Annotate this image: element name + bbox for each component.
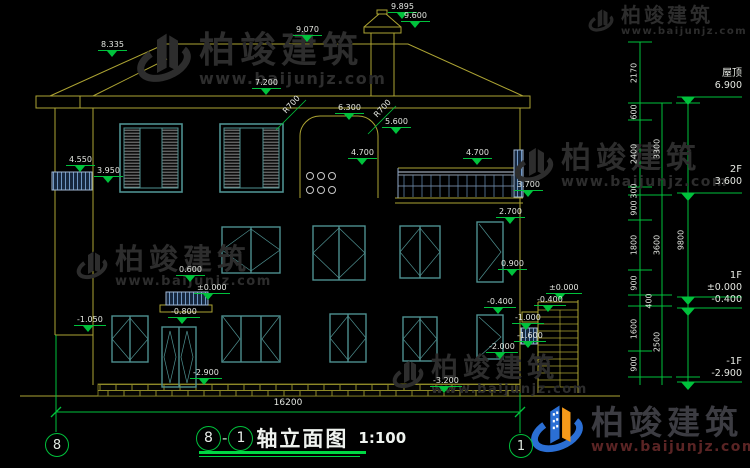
title-axis-bubble-left: 8 [196,426,221,451]
elevation-mark: 2.700 [496,207,525,224]
floor-elevation: -2.900 [692,368,742,380]
floor-elevation: 6.900 [692,80,742,92]
grid-bubble-label: 1 [517,439,525,454]
dimension-label: 1800 [630,235,639,255]
floor-elevation: 3.600 [692,176,742,188]
elevation-mark: -1.050 [74,315,106,332]
floor-name: 屋顶 [692,68,742,80]
elevation-mark: -0.400 [534,295,566,312]
title-scale: 1:100 [358,429,406,447]
elevation-mark: 0.900 [498,259,527,276]
elevation-mark: -3.200 [430,376,462,393]
elevation-mark: 4.550 [66,155,95,172]
title-text: 轴立面图 [256,423,348,453]
level-triangle-icon [75,166,85,172]
overall-dimension: 16200 [258,398,318,408]
level-triangle-icon [391,128,401,134]
elevation-mark: 4.700 [463,148,492,165]
dimension-label: 1600 [630,319,639,339]
elevation-mark: 3.950 [94,166,123,183]
level-triangle-icon [357,159,367,165]
elevation-mark: -0.800 [168,307,200,324]
elevation-mark: 9.070 [293,25,322,42]
title-axis-right: 1 [236,430,245,446]
elevation-mark: -1.600 [514,331,546,348]
elevation-mark: 5.600 [382,117,411,134]
floor-name: 2F [692,164,742,176]
balcony-railing [398,168,520,198]
level-triangle-icon [493,308,503,314]
title-axis-bubble-right: 1 [228,426,253,451]
dimension-label: 3300 [653,139,662,159]
level-triangle-icon [185,276,195,282]
floor-name: 1F [692,270,742,282]
elevation-mark: 9.600 [401,11,430,28]
level-triangle-icon [261,89,271,95]
floor-mark-basement: -1F -2.900 [692,356,742,380]
level-triangle-icon [302,36,312,42]
drawing-title: 8 - 1 轴立面图 1:100 [196,423,406,453]
elevation-mark: ±0.000 [194,283,230,300]
floor-mark-2f: 2F 3.600 [692,164,742,188]
level-triangle-icon [543,306,553,312]
level-triangle-icon [495,353,505,359]
elevation-mark: 0.600 [176,265,205,282]
dimension-label: 400 [645,293,654,308]
level-triangle-icon [177,318,187,324]
vent-circles [307,173,336,194]
floor-mark-1f: 1F ±0.000 -0.400 [692,270,742,306]
level-triangle-icon [83,326,93,332]
elevation-mark: 6.300 [335,103,364,120]
level-triangle-icon [107,51,117,57]
elevation-drawing-canvas: 柏竣建筑 www.baijunjz.com 柏竣建筑 www.baijunjz.… [0,0,750,468]
dimension-label: 900 [630,200,639,215]
level-triangle-icon [203,294,213,300]
level-triangle-icon [523,342,533,348]
level-triangle-icon [199,379,209,385]
dimension-label: 600 [630,104,639,119]
level-triangle-icon [103,177,113,183]
elevation-mark: -0.400 [484,297,516,314]
elevation-mark: 7.200 [252,78,281,95]
dimension-label: 9800 [677,230,686,250]
dimension-label: 900 [630,275,639,290]
grid-bubble-label: 8 [53,438,61,453]
floor-mark-roof: 屋顶 6.900 [692,68,742,92]
title-separator: - [222,429,227,447]
level-triangle-icon [344,114,354,120]
floor-elevation: ±0.000 [692,282,742,294]
elevation-mark: -2.900 [190,368,222,385]
dimension-label: 2170 [630,63,639,83]
floor-elevation-2: -0.400 [692,294,742,306]
elevation-mark: -2.000 [486,342,518,359]
title-axis-left: 8 [204,430,213,446]
dimension-label: 300 [630,183,639,198]
level-triangle-icon [439,387,449,393]
elevation-mark: -1.000 [512,313,544,330]
level-triangle-icon [410,22,420,28]
dimension-label: 3600 [653,235,662,255]
level-triangle-icon [507,270,517,276]
dimension-label: 2400 [630,144,639,164]
level-triangle-icon [505,218,515,224]
floor-name: -1F [692,356,742,368]
elevation-mark: 8.335 [98,40,127,57]
elevation-mark: 3.700 [514,180,543,197]
level-triangle-icon [523,191,533,197]
title-underline-thick [199,451,366,454]
elevation-mark: 4.700 [348,148,377,165]
level-triangle-icon [472,159,482,165]
grid-bubble-8: 8 [45,433,69,457]
title-underline-thin [199,456,360,457]
level-triangle-icon [521,324,531,330]
dimension-label: 900 [630,356,639,371]
dimension-label: 2500 [653,332,662,352]
grid-bubble-1: 1 [509,434,533,458]
